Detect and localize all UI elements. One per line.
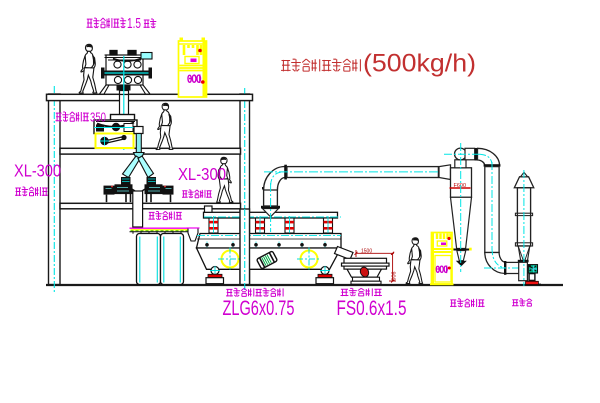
svg-text:XL-300: XL-300 <box>14 161 61 181</box>
svg-text:900: 900 <box>389 272 395 281</box>
svg-text:(500kg/h): (500kg/h) <box>363 50 476 78</box>
svg-text:F600: F600 <box>454 183 467 189</box>
svg-text:XL-300: XL-300 <box>178 164 226 184</box>
svg-text:1500: 1500 <box>361 248 372 254</box>
svg-text:FS0.6x1.5: FS0.6x1.5 <box>337 297 407 320</box>
svg-text:350: 350 <box>90 110 106 125</box>
svg-text:1.5: 1.5 <box>127 16 141 32</box>
svg-text:ZLG6x0.75: ZLG6x0.75 <box>223 297 295 320</box>
